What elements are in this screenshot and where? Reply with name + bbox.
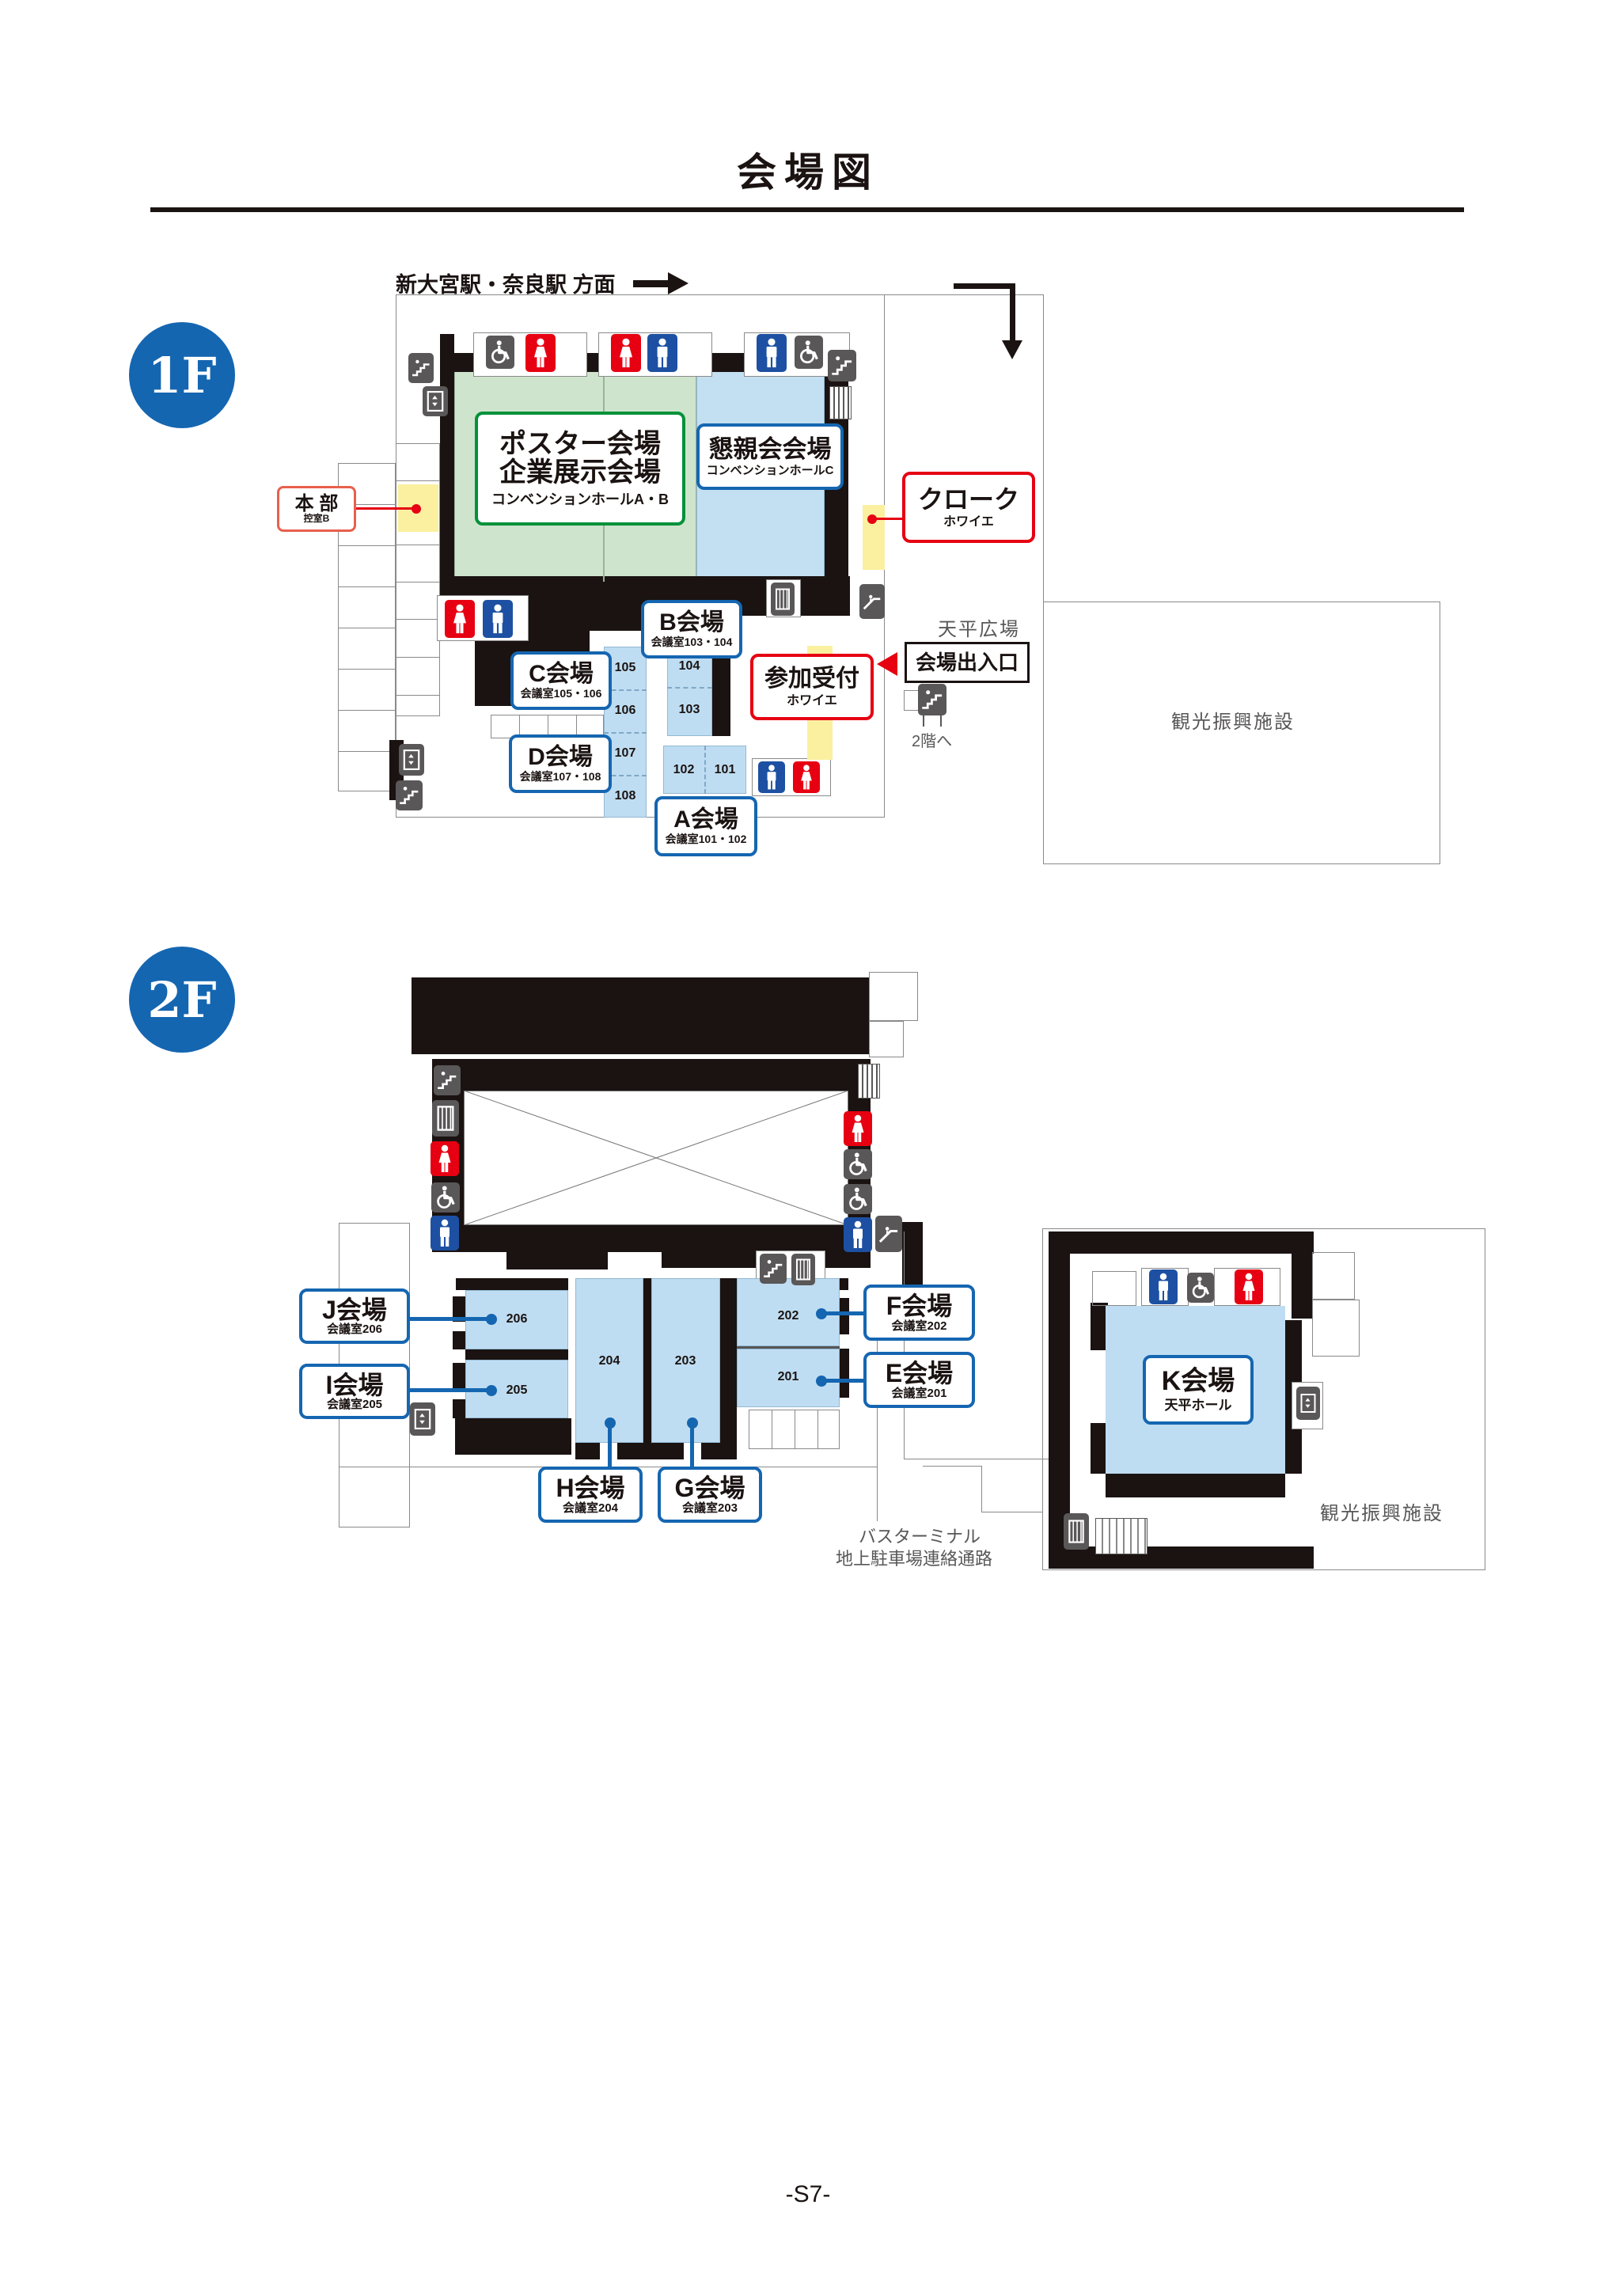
vending-machine-icon bbox=[771, 583, 795, 616]
men-toilet-icon bbox=[757, 334, 787, 372]
elevator-shaft bbox=[858, 1064, 880, 1099]
room-number: 103 bbox=[679, 703, 700, 717]
wall bbox=[840, 1349, 849, 1398]
wall bbox=[575, 1443, 600, 1459]
room-divider bbox=[338, 628, 396, 628]
wall bbox=[453, 1331, 465, 1349]
leader-dot-g bbox=[687, 1417, 698, 1429]
wall bbox=[506, 1252, 608, 1269]
room-number: 202 bbox=[778, 1309, 799, 1323]
page-number: -S7- bbox=[0, 2181, 1616, 2208]
venue-label-f: F会場 会議室202 bbox=[863, 1285, 975, 1341]
stairs-hatch bbox=[1095, 1518, 1148, 1554]
reception-label: 参加受付 ホワイエ bbox=[750, 654, 874, 720]
atrium-void bbox=[464, 1091, 848, 1225]
floor2-badge: 2F bbox=[129, 947, 235, 1053]
leader-line-i bbox=[410, 1388, 491, 1392]
vending-machine-icon bbox=[791, 1254, 815, 1285]
room-divider bbox=[338, 710, 396, 711]
station-arrow-head-icon bbox=[668, 272, 689, 294]
room-number: 108 bbox=[615, 789, 636, 803]
wall bbox=[825, 1252, 871, 1268]
honbu-label: 本 部 控室B bbox=[277, 486, 356, 532]
room-divider bbox=[338, 669, 396, 670]
venue-label-h: H会場 会議室204 bbox=[538, 1467, 643, 1523]
leader-line-h bbox=[608, 1423, 612, 1467]
elevator-icon bbox=[1296, 1387, 1320, 1420]
entrance-label: 会場出入口 bbox=[905, 642, 1030, 683]
honbu-leader-line bbox=[355, 507, 415, 510]
k-side-room bbox=[1312, 1252, 1355, 1300]
men-toilet-icon bbox=[431, 1216, 459, 1250]
women-toilet-icon bbox=[525, 334, 556, 372]
venue-label-a: A会場 会議室101・102 bbox=[654, 796, 757, 856]
room-number: 201 bbox=[778, 1370, 799, 1384]
room-number: 205 bbox=[506, 1383, 528, 1398]
station-arrow-bar bbox=[633, 280, 668, 287]
room-divider bbox=[795, 1410, 795, 1449]
title-underline bbox=[150, 207, 1464, 212]
women-toilet-icon bbox=[445, 600, 475, 638]
wall bbox=[701, 1443, 737, 1459]
wall bbox=[456, 1278, 568, 1290]
room-divider bbox=[817, 1410, 818, 1449]
room-divider bbox=[396, 582, 440, 583]
venue-label-d: D会場 会議室107・108 bbox=[509, 734, 612, 793]
stairs-icon bbox=[828, 350, 856, 381]
wall bbox=[902, 1222, 923, 1285]
wall bbox=[662, 1252, 756, 1268]
poster-hall-label: ポスター会場 企業展示会場 コンベンションホールA・B bbox=[475, 412, 685, 526]
men-toilet-icon bbox=[844, 1217, 872, 1252]
leader-dot-i bbox=[486, 1385, 497, 1396]
leader-dot-h bbox=[605, 1417, 616, 1429]
room-number: 206 bbox=[506, 1312, 528, 1326]
f1-tourism-facility-label: 観光振興施設 bbox=[1171, 706, 1295, 734]
wall bbox=[453, 1363, 465, 1389]
entry-arrow-hbar bbox=[954, 283, 1015, 289]
leader-line-e bbox=[821, 1379, 863, 1383]
leader-line-j bbox=[410, 1317, 491, 1321]
escalator-icon bbox=[875, 1216, 902, 1252]
room-divider bbox=[338, 751, 396, 752]
wall bbox=[840, 1298, 849, 1334]
wall bbox=[465, 1349, 568, 1360]
venue-map-page: 会場図 1F 新大宮駅・奈良駅 方面 観光振興施設 天平広場 ポスター会場 企業… bbox=[0, 0, 1616, 2296]
women-toilet-icon bbox=[844, 1111, 872, 1146]
room-divider bbox=[396, 480, 440, 481]
leader-dot-f bbox=[816, 1308, 827, 1319]
corridor-line bbox=[904, 1459, 1049, 1459]
stairs-leg bbox=[940, 715, 942, 727]
men-toilet-icon bbox=[758, 761, 785, 793]
room-divider bbox=[396, 657, 440, 658]
elevator-icon bbox=[410, 1402, 435, 1436]
f2-floor-boundary bbox=[410, 1467, 877, 1467]
stairs-icon bbox=[760, 1254, 787, 1284]
wall bbox=[617, 1443, 684, 1459]
escalator-icon bbox=[859, 584, 885, 619]
wheelchair-icon bbox=[431, 1182, 460, 1213]
to-2f-note: 2階へ bbox=[912, 728, 952, 751]
venue-label-g: G会場 会議室203 bbox=[658, 1467, 762, 1523]
parking-passage-note: 地上駐車場連絡通路 bbox=[836, 1545, 992, 1570]
elevator-icon bbox=[399, 744, 424, 776]
wall bbox=[1292, 1241, 1312, 1319]
venue-label-c: C会場 会議室105・106 bbox=[510, 651, 612, 710]
wall bbox=[455, 1418, 571, 1455]
room-divider bbox=[396, 619, 440, 620]
room-divider bbox=[338, 545, 396, 546]
room-number: 101 bbox=[715, 763, 736, 777]
room-number: 102 bbox=[673, 763, 695, 777]
women-toilet-icon bbox=[431, 1141, 459, 1176]
stairs-landing bbox=[904, 690, 920, 711]
room-number: 107 bbox=[615, 746, 636, 761]
f1-plaza-top-line bbox=[885, 294, 1043, 295]
room-number: 104 bbox=[679, 659, 700, 674]
room-divider bbox=[604, 732, 647, 734]
cloak-label: クローク ホワイエ bbox=[902, 472, 1035, 543]
wall bbox=[453, 1399, 465, 1418]
wheelchair-icon bbox=[844, 1149, 872, 1179]
leader-line-f bbox=[821, 1311, 863, 1315]
men-toilet-icon bbox=[483, 600, 513, 638]
floor1-badge: 1F bbox=[129, 322, 235, 428]
wall bbox=[1106, 1474, 1285, 1497]
leader-dot-e bbox=[816, 1376, 827, 1387]
stairs-icon bbox=[918, 684, 946, 715]
vending-machine-icon bbox=[432, 1100, 459, 1137]
wall bbox=[1049, 1546, 1314, 1569]
wheelchair-icon bbox=[844, 1184, 872, 1214]
room-number: 203 bbox=[675, 1354, 696, 1368]
stairs-icon bbox=[408, 353, 434, 383]
venue-label-i: I会場 会議室205 bbox=[299, 1364, 410, 1419]
room-number: 204 bbox=[599, 1354, 620, 1368]
women-toilet-icon bbox=[793, 761, 820, 793]
k-side-room bbox=[1312, 1300, 1360, 1357]
women-toilet-icon bbox=[611, 334, 641, 372]
leader-line-g bbox=[690, 1423, 694, 1467]
room-divider bbox=[667, 687, 712, 689]
elevator-shaft bbox=[829, 386, 852, 419]
f1-plaza-label: 天平広場 bbox=[938, 613, 1020, 641]
corridor-line bbox=[981, 1466, 982, 1512]
f2-top-right-room bbox=[869, 1021, 904, 1057]
men-toilet-icon bbox=[1149, 1269, 1178, 1304]
stairs-icon bbox=[434, 1065, 461, 1095]
room-divider bbox=[396, 545, 440, 545]
room-divider bbox=[339, 1467, 410, 1467]
venue-label-e: E会場 会議室201 bbox=[863, 1352, 975, 1408]
wall bbox=[1049, 1231, 1314, 1254]
stairs-leg bbox=[923, 715, 924, 727]
f1-plaza-right-line bbox=[1043, 294, 1044, 603]
f2-tourism-facility-label: 観光振興施設 bbox=[1320, 1497, 1443, 1525]
venue-label-j: J会場 会議室206 bbox=[299, 1288, 410, 1344]
elevator-icon bbox=[423, 386, 448, 416]
wall bbox=[643, 1278, 651, 1443]
venue-label-k: K会場 天平ホール bbox=[1143, 1355, 1254, 1425]
entry-arrow-head-icon bbox=[1002, 340, 1022, 359]
wall bbox=[720, 1278, 737, 1443]
f2-top-right-room bbox=[869, 972, 918, 1021]
room-number: 106 bbox=[615, 704, 636, 718]
k-side-room bbox=[1092, 1271, 1136, 1306]
room-divider bbox=[338, 586, 396, 587]
venue-label-b: B会場 会議室103・104 bbox=[641, 600, 742, 658]
wheelchair-icon bbox=[795, 336, 823, 369]
women-toilet-icon bbox=[1235, 1269, 1263, 1304]
room-divider bbox=[737, 1346, 840, 1349]
leader-dot-j bbox=[486, 1314, 497, 1325]
corridor-line bbox=[981, 1512, 1042, 1512]
wheelchair-icon bbox=[1187, 1273, 1214, 1303]
entry-arrow-vbar bbox=[1010, 283, 1015, 342]
wall bbox=[712, 647, 730, 736]
room-divider bbox=[772, 1410, 772, 1449]
cloak-leader-line bbox=[872, 518, 905, 520]
room-divider bbox=[704, 746, 706, 794]
wall bbox=[412, 977, 869, 1054]
page-title: 会場図 bbox=[0, 141, 1616, 198]
wheelchair-icon bbox=[486, 336, 514, 369]
stairs-icon bbox=[396, 780, 423, 810]
corridor-line bbox=[923, 1466, 981, 1467]
room-divider bbox=[396, 695, 440, 696]
corridor-line bbox=[904, 1231, 905, 1459]
social-hall-label: 懇親会会場 コンベンションホールC bbox=[696, 423, 844, 490]
men-toilet-icon bbox=[647, 334, 677, 372]
room-number: 105 bbox=[615, 661, 636, 675]
entrance-arrow-icon bbox=[877, 652, 897, 676]
vending-machine-icon bbox=[1064, 1513, 1089, 1550]
